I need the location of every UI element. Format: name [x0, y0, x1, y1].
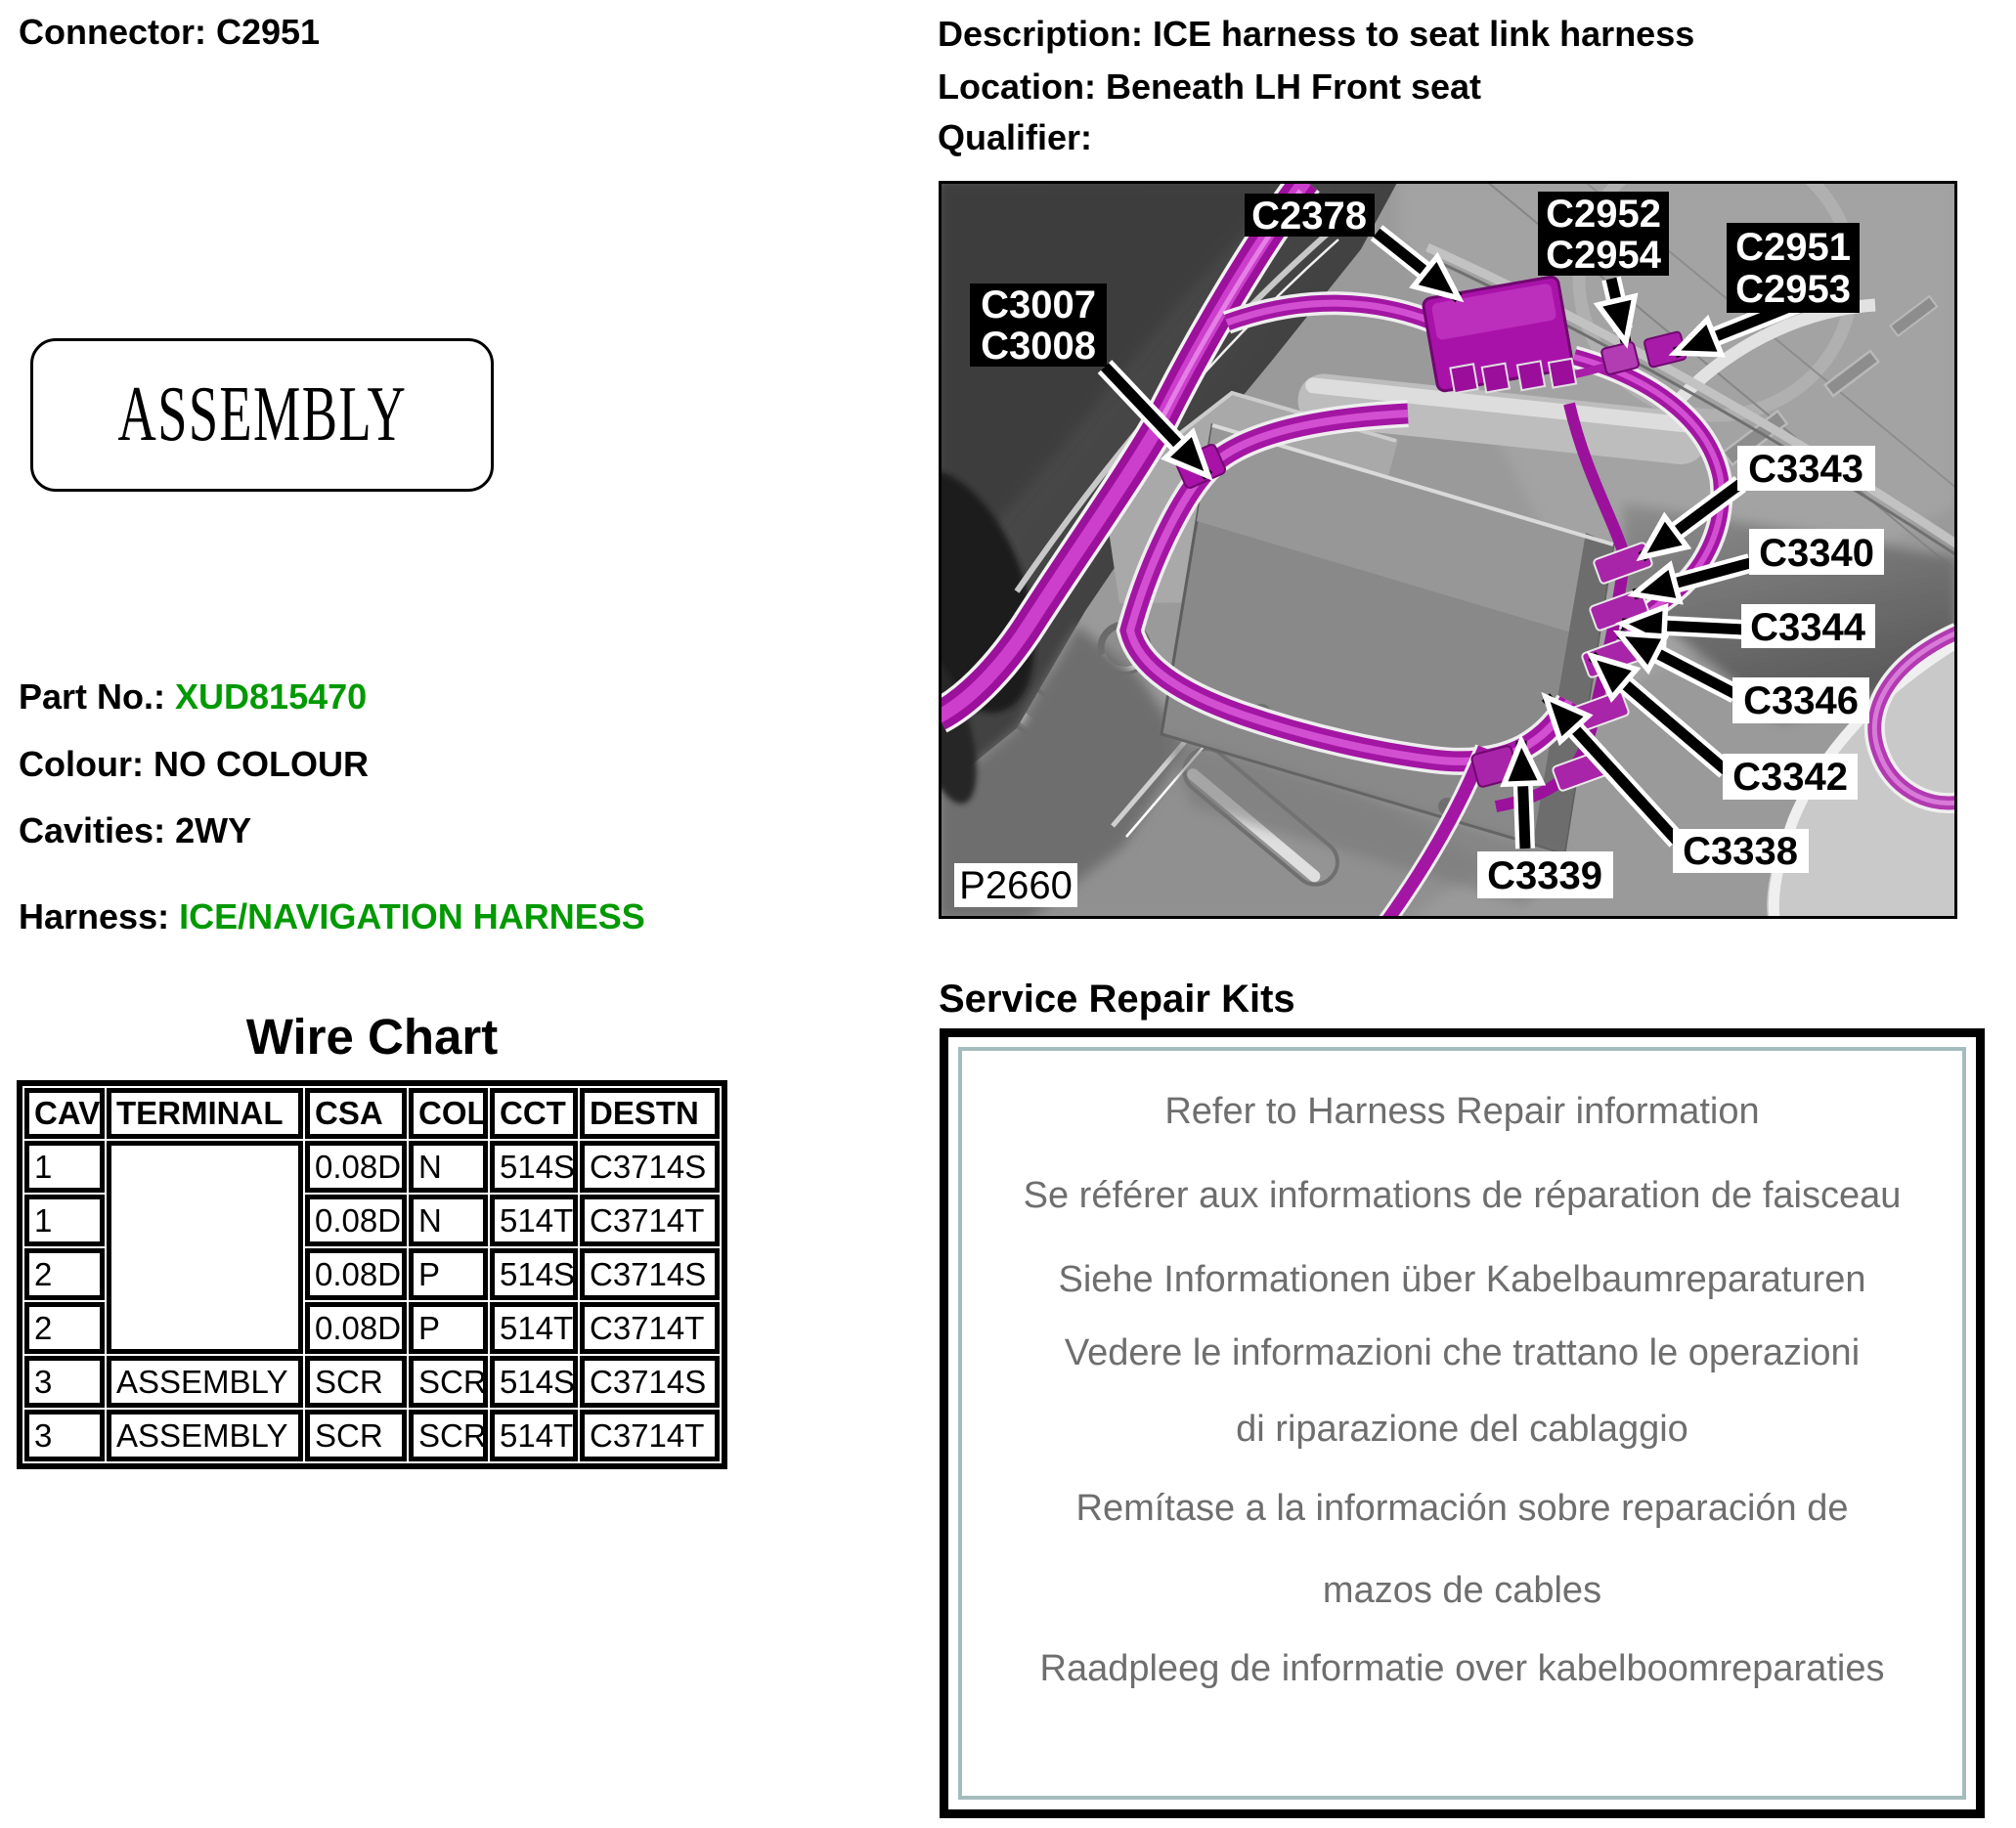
svg-text:C2954: C2954 [1546, 234, 1662, 277]
svg-text:C2951: C2951 [1735, 226, 1851, 269]
svg-text:C3007: C3007 [981, 283, 1096, 326]
svg-text:C2952: C2952 [1546, 193, 1661, 236]
svg-text:C3344: C3344 [1750, 606, 1866, 649]
svg-text:C3346: C3346 [1743, 679, 1859, 722]
svg-text:C2378: C2378 [1251, 195, 1367, 238]
svg-text:C3342: C3342 [1732, 756, 1848, 799]
svg-text:C3008: C3008 [981, 325, 1096, 368]
svg-text:P2660: P2660 [959, 864, 1073, 907]
svg-text:C3338: C3338 [1683, 830, 1798, 873]
svg-text:C2953: C2953 [1735, 268, 1851, 311]
svg-text:C3340: C3340 [1759, 532, 1874, 575]
svg-text:C3343: C3343 [1748, 448, 1863, 491]
svg-text:C3339: C3339 [1487, 854, 1602, 897]
